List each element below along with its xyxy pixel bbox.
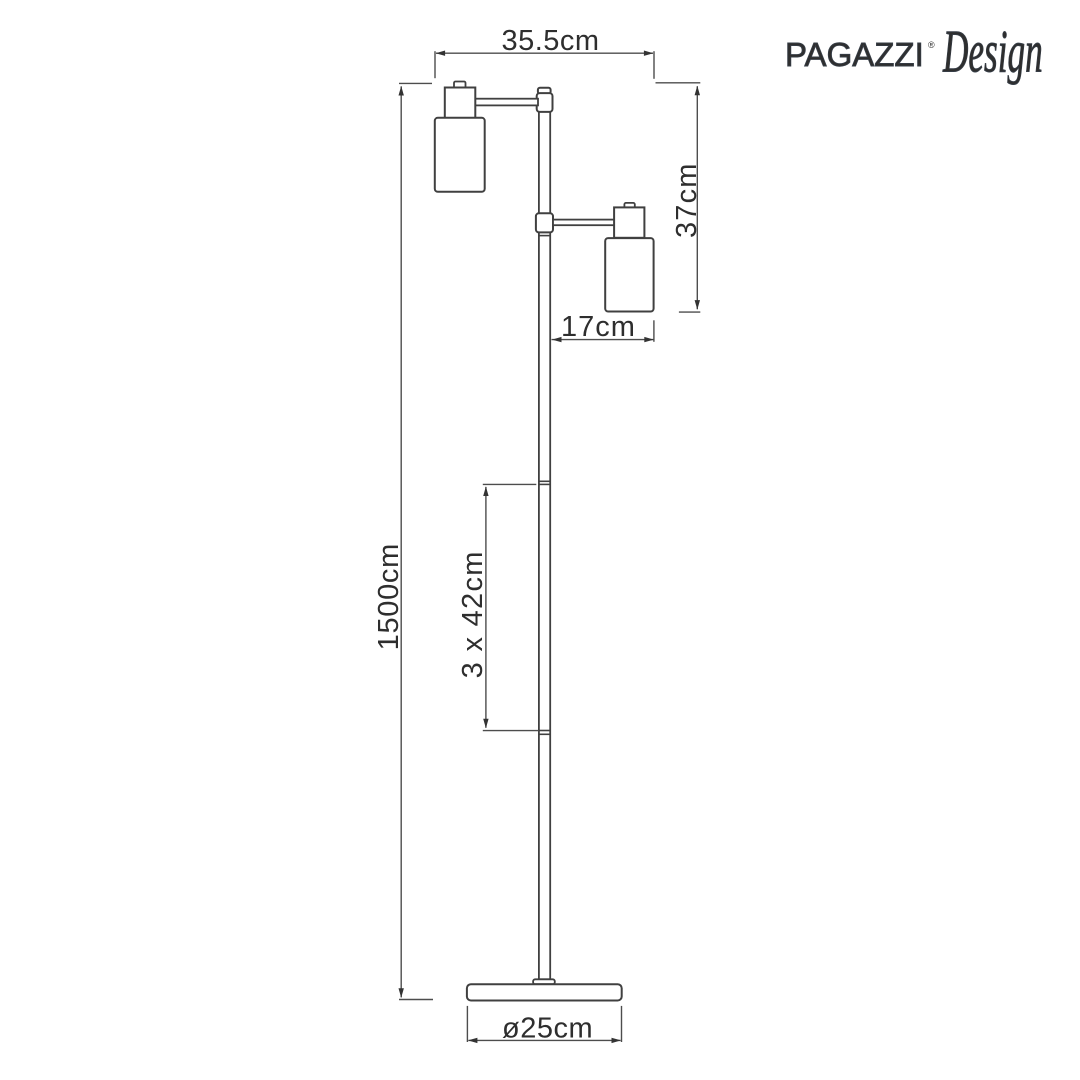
svg-text:1500cm: 1500cm — [373, 543, 405, 650]
svg-text:PAGAZZI: PAGAZZI — [785, 36, 924, 73]
svg-text:Design: Design — [942, 18, 1042, 85]
svg-text:17cm: 17cm — [561, 311, 636, 343]
svg-text:ø25cm: ø25cm — [502, 1013, 593, 1045]
svg-text:3 x 42cm: 3 x 42cm — [457, 550, 489, 678]
svg-text:®: ® — [928, 40, 935, 50]
svg-text:35.5cm: 35.5cm — [501, 25, 599, 57]
svg-text:37cm: 37cm — [671, 162, 703, 238]
